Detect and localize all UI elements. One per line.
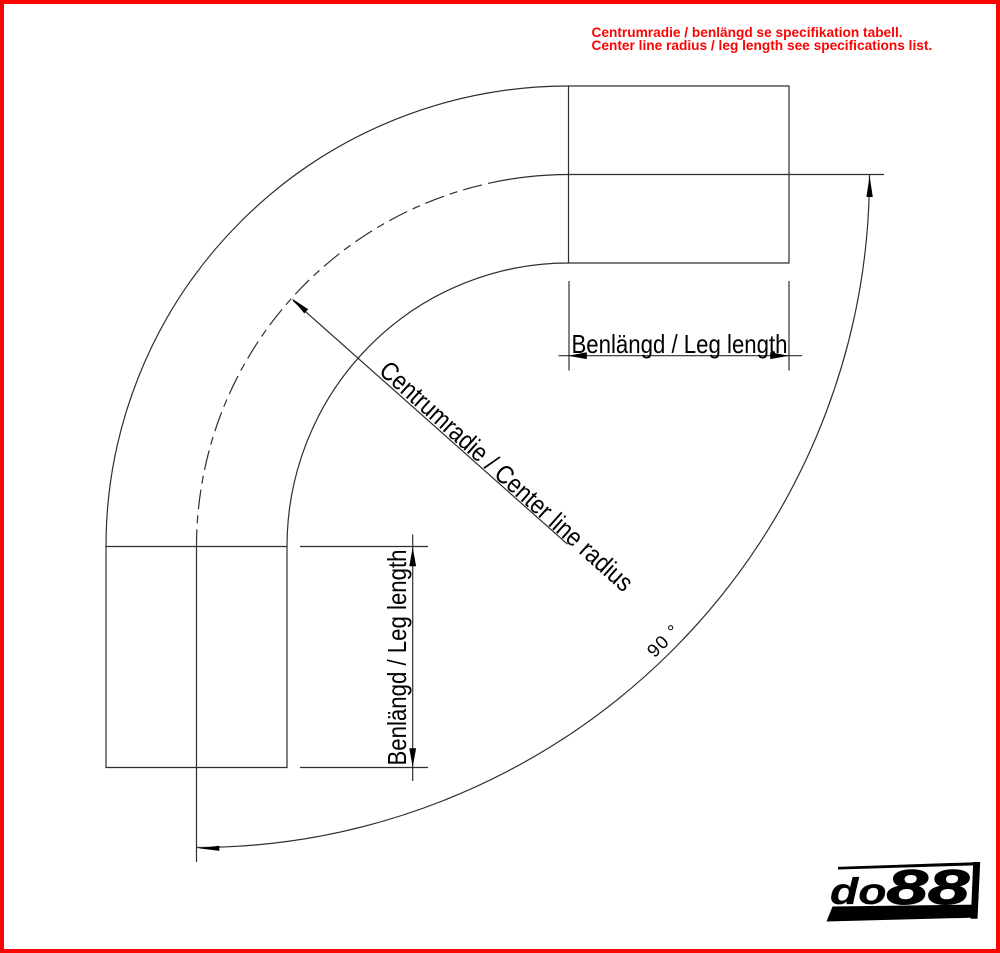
svg-text:do: do — [830, 870, 887, 912]
svg-text:90 °: 90 ° — [642, 620, 683, 661]
svg-text:88: 88 — [887, 860, 970, 914]
svg-text:Benlängd / Leg length: Benlängd / Leg length — [572, 329, 788, 359]
svg-text:Benlängd / Leg length: Benlängd / Leg length — [382, 550, 412, 766]
